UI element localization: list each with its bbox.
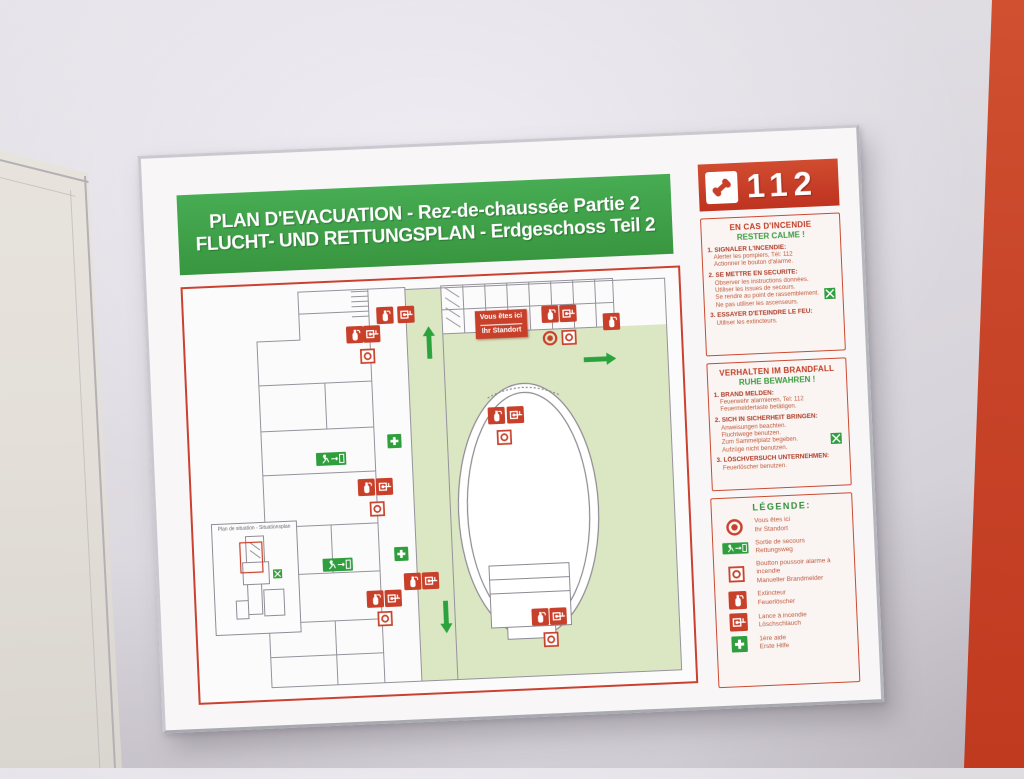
fire-extinguisher-icon <box>541 305 559 323</box>
fire-instructions-panel-fr: EN CAS D'INCENDIE RESTER CALME ! 1. SIGN… <box>700 212 846 356</box>
emergency-number-banner: 112 <box>698 159 840 212</box>
situation-plan-inset: Plan de situation - Situationsplan <box>211 520 302 636</box>
fire-extinguisher-icon <box>357 479 375 497</box>
fire-hose-icon <box>397 306 415 324</box>
orange-accent-wall <box>964 0 1024 768</box>
fire-hose-icon <box>384 589 402 607</box>
fire-hose-icon <box>725 613 752 632</box>
legend-item-exit: Sortie de secoursRettungsweg <box>722 535 849 557</box>
evacuation-arrow-right-icon <box>582 352 619 367</box>
fire-extinguisher-icon <box>531 608 549 626</box>
legend-label: Boutton poussoir alarme à incendieManuel… <box>756 557 850 586</box>
you-are-here-fr: Vous êtes ici <box>480 312 523 326</box>
fire-hose-icon <box>559 304 577 322</box>
door-edge-line <box>70 190 101 779</box>
floor-plan: Vous êtes iciIhr Standort Plan de situat… <box>181 265 699 704</box>
evacuation-arrow-up-icon <box>422 325 436 360</box>
sign-title-bar: PLAN D'EVACUATION - Rez-de-chaussée Part… <box>176 174 673 275</box>
phone-icon <box>705 170 738 203</box>
fire-hose-icon <box>363 325 381 343</box>
legend-panel: LÉGENDE: Vous êtes iciIhr StandortSortie… <box>710 492 860 688</box>
alarm-button-icon <box>378 611 394 627</box>
fire-instructions-panel-de: VERHALTEN IM BRANDFALL RUHE BEWAHREN ! 1… <box>706 357 851 491</box>
first-aid-icon <box>394 547 409 562</box>
legend-label: Vous êtes iciIhr Standort <box>754 516 791 534</box>
legend-title: LÉGENDE: <box>716 498 846 514</box>
fire-extinguisher-icon <box>724 590 751 609</box>
legend-label: Lance à incendieLöschschlauch <box>758 611 807 630</box>
legend-label-de: Löschschlauch <box>759 619 808 629</box>
emergency-exit-icon <box>722 542 748 555</box>
fire-extinguisher-icon <box>366 590 384 608</box>
you-are-here-marker-icon <box>721 517 748 536</box>
legend-label: 1ère aideErste Hilfe <box>759 634 789 652</box>
emergency-number: 112 <box>746 164 819 205</box>
first-aid-icon <box>726 636 753 653</box>
you-are-here-marker-icon <box>542 330 559 347</box>
fire-extinguisher-icon <box>403 572 421 590</box>
fire-extinguisher-icon <box>376 307 394 325</box>
fire-hose-icon <box>506 406 524 424</box>
legend-label-de: Ihr Standort <box>754 524 790 534</box>
assembly-point-icon <box>830 431 842 449</box>
legend-items: Vous êtes iciIhr StandortSortie de secou… <box>717 513 853 653</box>
emergency-exit-icon <box>316 451 347 465</box>
fire-hose-icon <box>375 478 393 496</box>
assembly-point-icon <box>824 286 836 304</box>
fire-hose-icon <box>421 572 439 590</box>
alarm-button-icon <box>723 565 750 582</box>
plan-markers-layer: Vous êtes iciIhr Standort <box>183 268 697 703</box>
situation-map <box>215 531 297 630</box>
first-aid-icon <box>387 434 402 449</box>
legend-item-alarm: Boutton poussoir alarme à incendieManuel… <box>723 557 850 587</box>
alarm-button-icon <box>561 330 577 346</box>
alarm-button-icon <box>359 349 375 365</box>
poster: PLAN D'EVACUATION - Rez-de-chaussée Part… <box>145 132 877 726</box>
fire-extinguisher-icon <box>345 325 363 343</box>
evacuation-arrow-down-icon <box>439 600 453 635</box>
legend-label-de: Feuerlöscher <box>758 597 796 607</box>
evacuation-plan-sign: PLAN D'EVACUATION - Rez-de-chaussée Part… <box>138 125 885 734</box>
you-are-here-label: Vous êtes iciIhr Standort <box>475 309 528 340</box>
emergency-exit-icon <box>323 557 354 571</box>
instruction-item: 2. SICH IN SICHERHEIT BRINGEN:Anweisunge… <box>715 412 844 454</box>
instruction-item: 3. LÖSCHVERSUCH UNTERNEHMEN:Feuerlöscher… <box>716 452 845 472</box>
legend-item-hose: Lance à incendieLöschschlauch <box>725 608 852 631</box>
alarm-button-icon <box>369 501 385 517</box>
door-edge-line <box>0 176 76 197</box>
legend-item-ext: ExtincteurFeuerlöscher <box>724 586 851 609</box>
alarm-button-icon <box>543 631 559 647</box>
legend-label-de: Rettungsweg <box>755 546 805 556</box>
door-edge-line <box>84 176 116 775</box>
you-are-here-de: Ihr Standort <box>480 326 523 337</box>
panel-items-fr: 1. SIGNALER L'INCENDIE:Alerter les pompi… <box>707 241 838 327</box>
panel-items-de: 1. BRAND MELDEN:Feuerwehr alarmieren, Te… <box>714 386 845 472</box>
instruction-item: 1. SIGNALER L'INCENDIE:Alerter les pompi… <box>707 241 836 269</box>
legend-label: ExtincteurFeuerlöscher <box>757 589 795 607</box>
instruction-item: 2. SE METTRE EN SECURITE:Observer les in… <box>708 267 837 309</box>
legend-item-location: Vous êtes iciIhr Standort <box>721 513 848 536</box>
fire-extinguisher-icon <box>487 407 505 425</box>
legend-label: Sortie de secoursRettungsweg <box>755 537 805 556</box>
fire-extinguisher-icon <box>602 312 620 330</box>
fire-hose-icon <box>549 607 567 625</box>
door-frame <box>0 0 132 768</box>
instruction-item: 1. BRAND MELDEN:Feuerwehr alarmieren, Te… <box>714 386 843 414</box>
legend-item-firstaid: 1ère aideErste Hilfe <box>726 631 853 653</box>
instruction-item: 3. ESSAYER D'ETEINDRE LE FEU:Utiliser le… <box>710 307 839 327</box>
legend-label-de: Erste Hilfe <box>760 642 790 652</box>
alarm-button-icon <box>497 430 513 446</box>
